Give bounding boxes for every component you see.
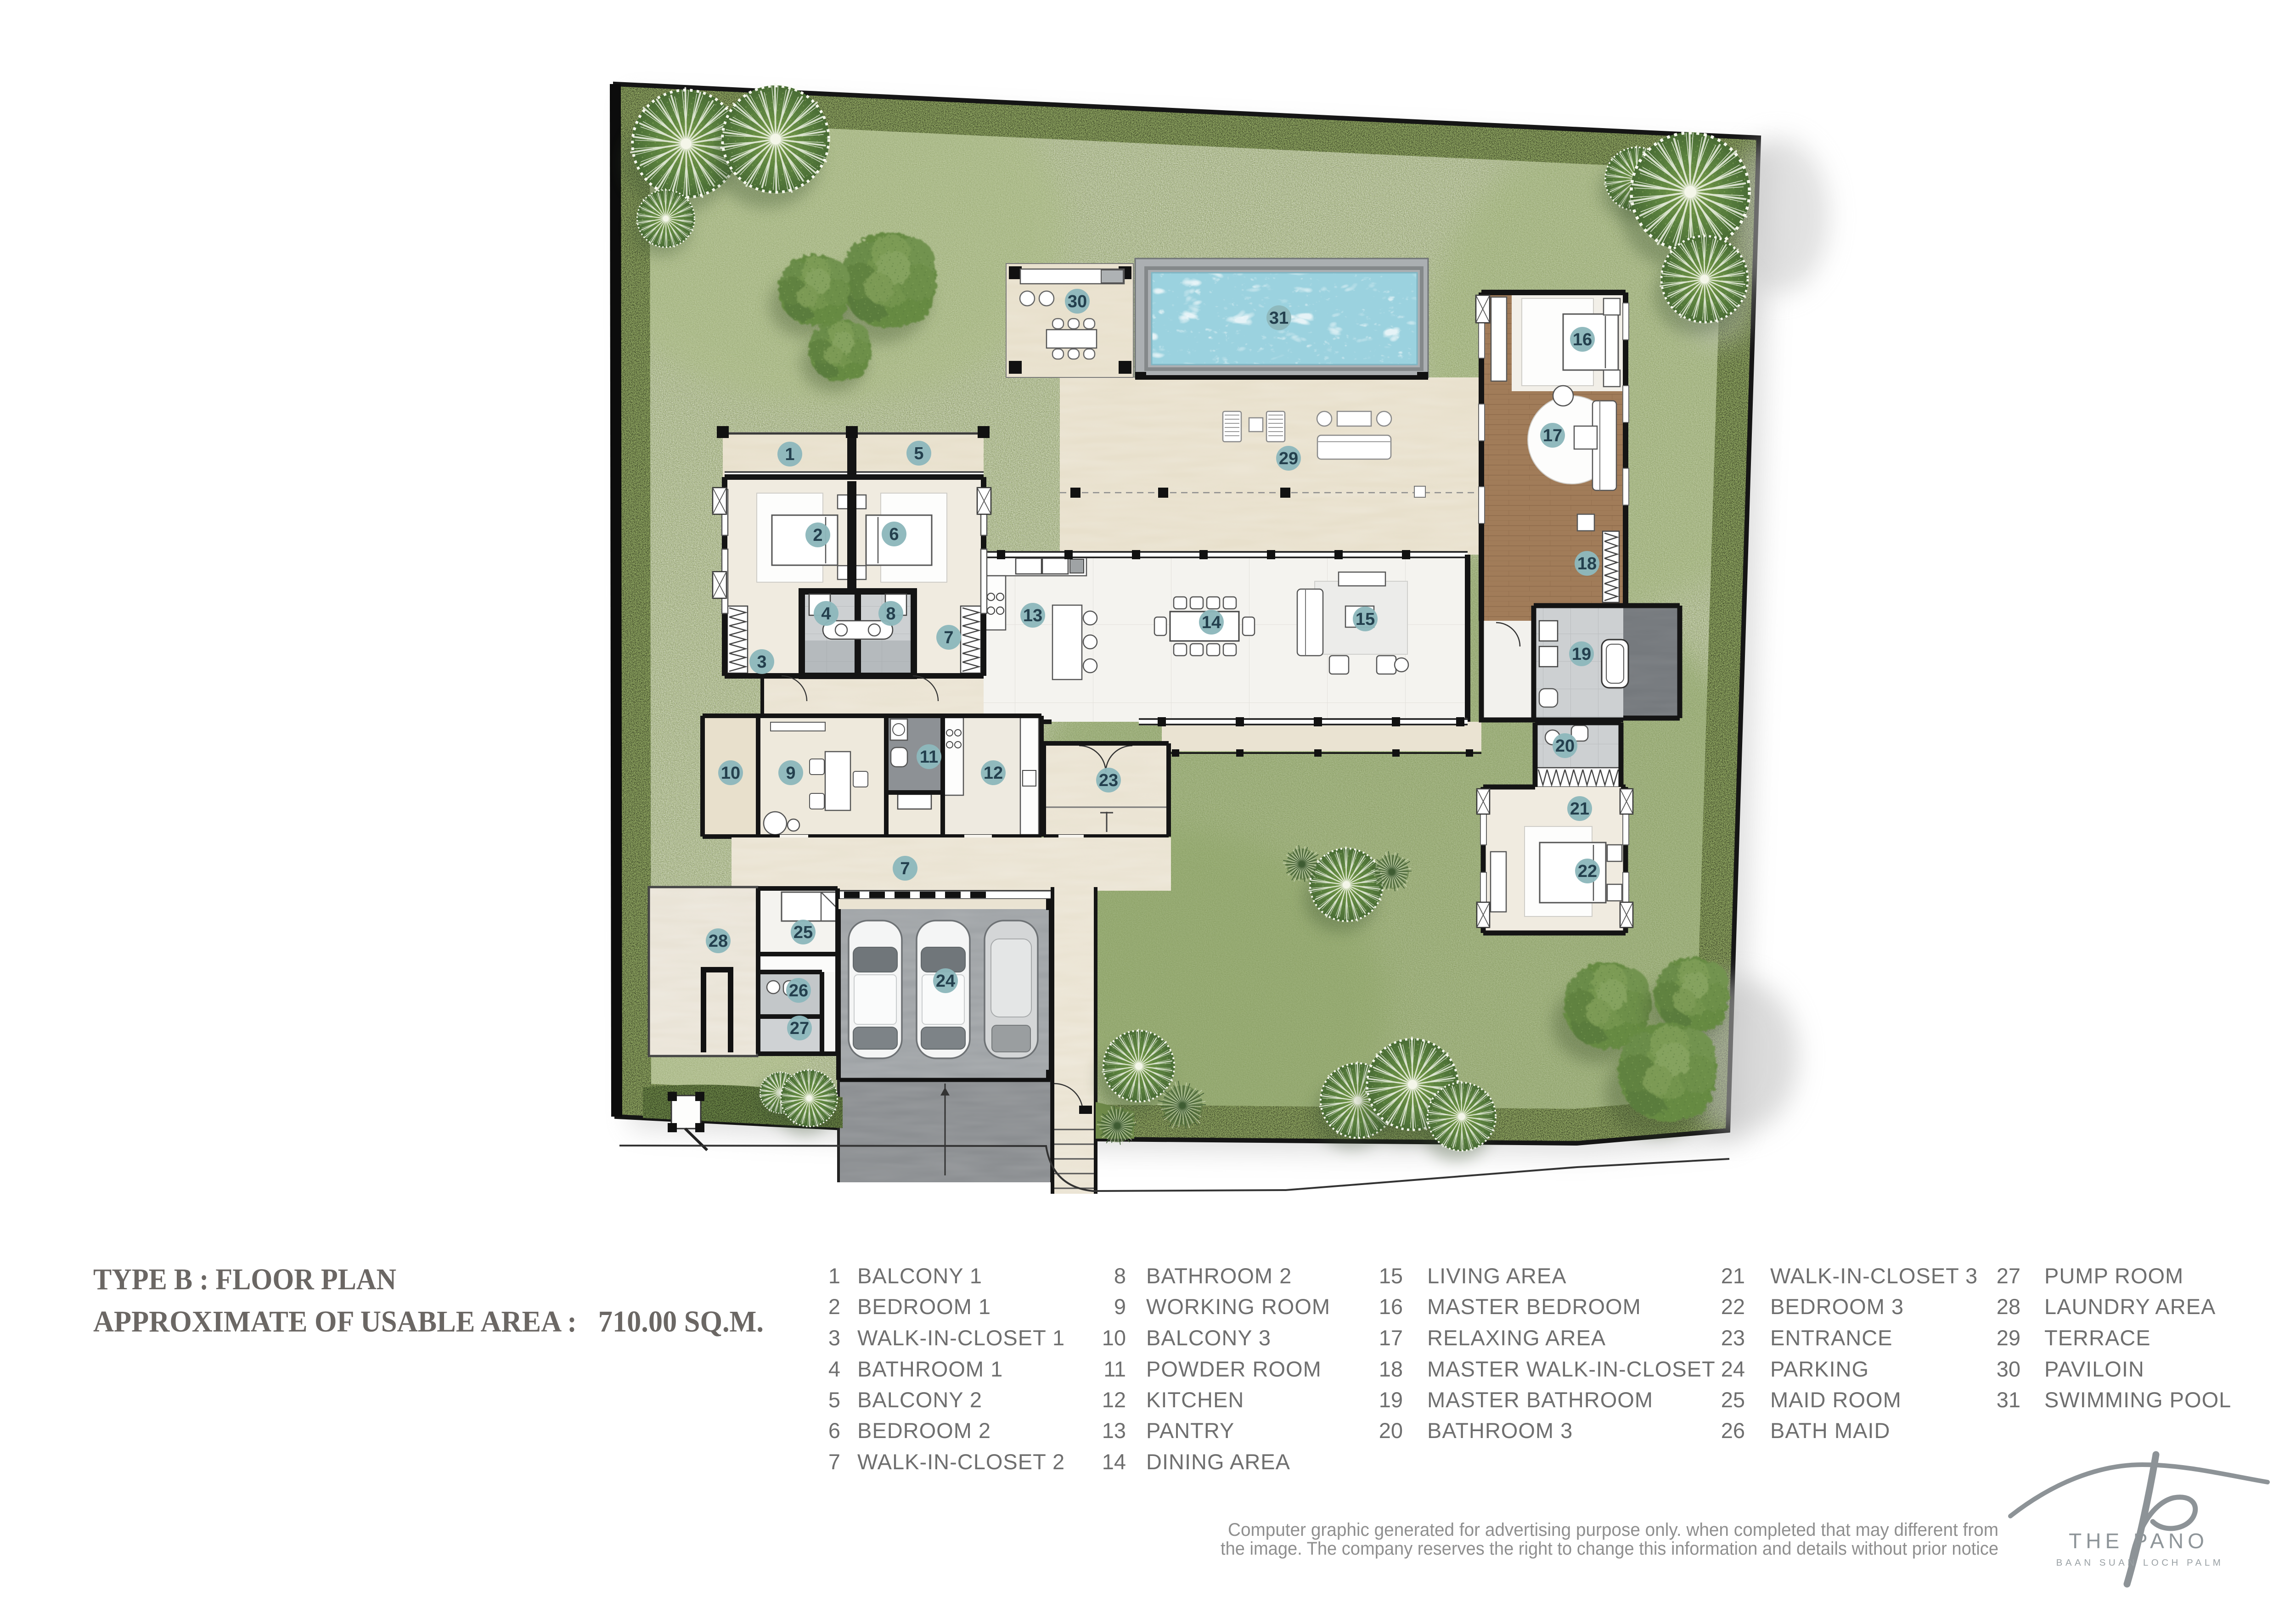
svg-text:11: 11	[1103, 1357, 1126, 1381]
svg-text:27: 27	[1997, 1264, 2020, 1288]
svg-text:25: 25	[1721, 1388, 1745, 1412]
svg-text:WALK-IN-CLOSET 1: WALK-IN-CLOSET 1	[857, 1326, 1065, 1350]
svg-text:31: 31	[1269, 309, 1289, 328]
svg-text:1: 1	[828, 1264, 840, 1288]
svg-text:LIVING AREA: LIVING AREA	[1427, 1264, 1567, 1288]
svg-text:26: 26	[789, 981, 808, 1000]
svg-text:26: 26	[1721, 1418, 1745, 1443]
svg-text:21: 21	[1570, 799, 1589, 819]
svg-text:Computer graphic generated for: Computer graphic generated for advertisi…	[1228, 1520, 1998, 1540]
svg-text:PUMP ROOM: PUMP ROOM	[2044, 1264, 2183, 1288]
svg-text:TERRACE: TERRACE	[2044, 1326, 2151, 1350]
svg-text:23: 23	[1099, 771, 1118, 790]
svg-text:5: 5	[914, 444, 923, 463]
svg-text:POWDER ROOM: POWDER ROOM	[1146, 1357, 1322, 1381]
svg-text:APPROXIMATE OF USABLE AREA :: APPROXIMATE OF USABLE AREA : 710.00 SQ.M…	[93, 1305, 764, 1338]
svg-text:16: 16	[1379, 1294, 1403, 1319]
svg-text:21: 21	[1721, 1264, 1745, 1288]
svg-text:24: 24	[936, 972, 955, 991]
svg-text:27: 27	[790, 1019, 809, 1038]
svg-text:11: 11	[920, 747, 938, 767]
svg-text:MASTER BEDROOM: MASTER BEDROOM	[1427, 1294, 1641, 1319]
svg-text:BATHROOM 3: BATHROOM 3	[1427, 1418, 1573, 1443]
svg-text:23: 23	[1721, 1326, 1745, 1350]
svg-text:2: 2	[828, 1294, 840, 1319]
svg-text:14: 14	[1202, 613, 1221, 632]
svg-text:24: 24	[1721, 1357, 1745, 1381]
svg-text:BAAN SUAN LOCH PALM: BAAN SUAN LOCH PALM	[2056, 1557, 2224, 1568]
svg-text:12: 12	[984, 764, 1003, 783]
svg-text:7: 7	[900, 859, 910, 878]
svg-text:13: 13	[1023, 606, 1042, 625]
svg-text:28: 28	[709, 932, 728, 951]
svg-text:MAID ROOM: MAID ROOM	[1770, 1388, 1902, 1412]
svg-text:6: 6	[828, 1418, 840, 1443]
svg-text:DINING AREA: DINING AREA	[1146, 1450, 1290, 1474]
svg-text:PARKING: PARKING	[1770, 1357, 1869, 1381]
svg-text:3: 3	[828, 1326, 840, 1350]
svg-text:22: 22	[1721, 1294, 1745, 1319]
svg-text:30: 30	[1997, 1357, 2020, 1381]
svg-text:10: 10	[721, 764, 740, 783]
svg-text:14: 14	[1102, 1450, 1126, 1474]
svg-text:19: 19	[1572, 645, 1591, 664]
svg-text:BEDROOM 3: BEDROOM 3	[1770, 1294, 1904, 1319]
svg-text:WALK-IN-CLOSET 3: WALK-IN-CLOSET 3	[1770, 1264, 1978, 1288]
svg-text:10: 10	[1102, 1326, 1126, 1350]
svg-text:30: 30	[1068, 292, 1087, 311]
svg-text:7: 7	[944, 628, 953, 647]
svg-text:17: 17	[1543, 426, 1562, 445]
svg-text:19: 19	[1379, 1388, 1403, 1412]
svg-text:18: 18	[1379, 1357, 1403, 1381]
svg-text:12: 12	[1102, 1388, 1126, 1412]
svg-text:31: 31	[1997, 1388, 2020, 1412]
svg-text:MASTER BATHROOM: MASTER BATHROOM	[1427, 1388, 1653, 1412]
svg-text:20: 20	[1555, 736, 1575, 756]
svg-text:PANTRY: PANTRY	[1146, 1418, 1234, 1443]
svg-text:BATHROOM 2: BATHROOM 2	[1146, 1264, 1292, 1288]
svg-text:9: 9	[1114, 1294, 1126, 1319]
svg-text:8: 8	[886, 604, 895, 624]
svg-text:8: 8	[1114, 1264, 1126, 1288]
svg-text:5: 5	[828, 1388, 840, 1412]
svg-text:RELAXING AREA: RELAXING AREA	[1427, 1326, 1606, 1350]
svg-text:BALCONY 1: BALCONY 1	[857, 1264, 982, 1288]
svg-text:28: 28	[1997, 1294, 2020, 1319]
svg-text:WORKING ROOM: WORKING ROOM	[1146, 1294, 1330, 1319]
svg-text:BEDROOM 2: BEDROOM 2	[857, 1418, 991, 1443]
svg-text:KITCHEN: KITCHEN	[1146, 1388, 1244, 1412]
svg-text:SWIMMING POOL: SWIMMING POOL	[2044, 1388, 2231, 1412]
svg-text:29: 29	[1279, 449, 1298, 468]
svg-text:16: 16	[1573, 330, 1592, 349]
svg-text:25: 25	[793, 923, 813, 942]
svg-text:MASTER WALK-IN-CLOSET: MASTER WALK-IN-CLOSET	[1427, 1357, 1716, 1381]
svg-text:THE PANO: THE PANO	[2069, 1529, 2208, 1553]
svg-text:TYPE B : FLOOR PLAN: TYPE B : FLOOR PLAN	[93, 1263, 396, 1296]
svg-text:29: 29	[1997, 1326, 2020, 1350]
svg-text:15: 15	[1379, 1264, 1403, 1288]
svg-text:18: 18	[1577, 554, 1597, 573]
svg-text:BALCONY 3: BALCONY 3	[1146, 1326, 1271, 1350]
svg-text:6: 6	[889, 525, 899, 544]
svg-text:1: 1	[785, 445, 794, 464]
svg-text:20: 20	[1379, 1418, 1403, 1443]
svg-text:the image. The company reserve: the image. The company reserves the righ…	[1221, 1539, 1998, 1559]
svg-text:WALK-IN-CLOSET 2: WALK-IN-CLOSET 2	[857, 1450, 1065, 1474]
svg-text:PAVILOIN: PAVILOIN	[2044, 1357, 2144, 1381]
svg-text:4: 4	[821, 604, 831, 624]
svg-text:7: 7	[828, 1450, 840, 1474]
svg-text:BALCONY 2: BALCONY 2	[857, 1388, 982, 1412]
svg-text:4: 4	[828, 1357, 840, 1381]
svg-text:13: 13	[1102, 1418, 1126, 1443]
svg-text:ENTRANCE: ENTRANCE	[1770, 1326, 1893, 1350]
svg-text:15: 15	[1356, 610, 1375, 629]
svg-text:BATH MAID: BATH MAID	[1770, 1418, 1890, 1443]
svg-text:3: 3	[757, 652, 766, 672]
svg-text:17: 17	[1379, 1326, 1403, 1350]
svg-text:9: 9	[786, 764, 795, 783]
svg-text:LAUNDRY AREA: LAUNDRY AREA	[2044, 1294, 2216, 1319]
svg-text:BEDROOM 1: BEDROOM 1	[857, 1294, 991, 1319]
svg-text:2: 2	[813, 526, 822, 545]
svg-text:22: 22	[1578, 862, 1597, 881]
svg-text:BATHROOM 1: BATHROOM 1	[857, 1357, 1003, 1381]
